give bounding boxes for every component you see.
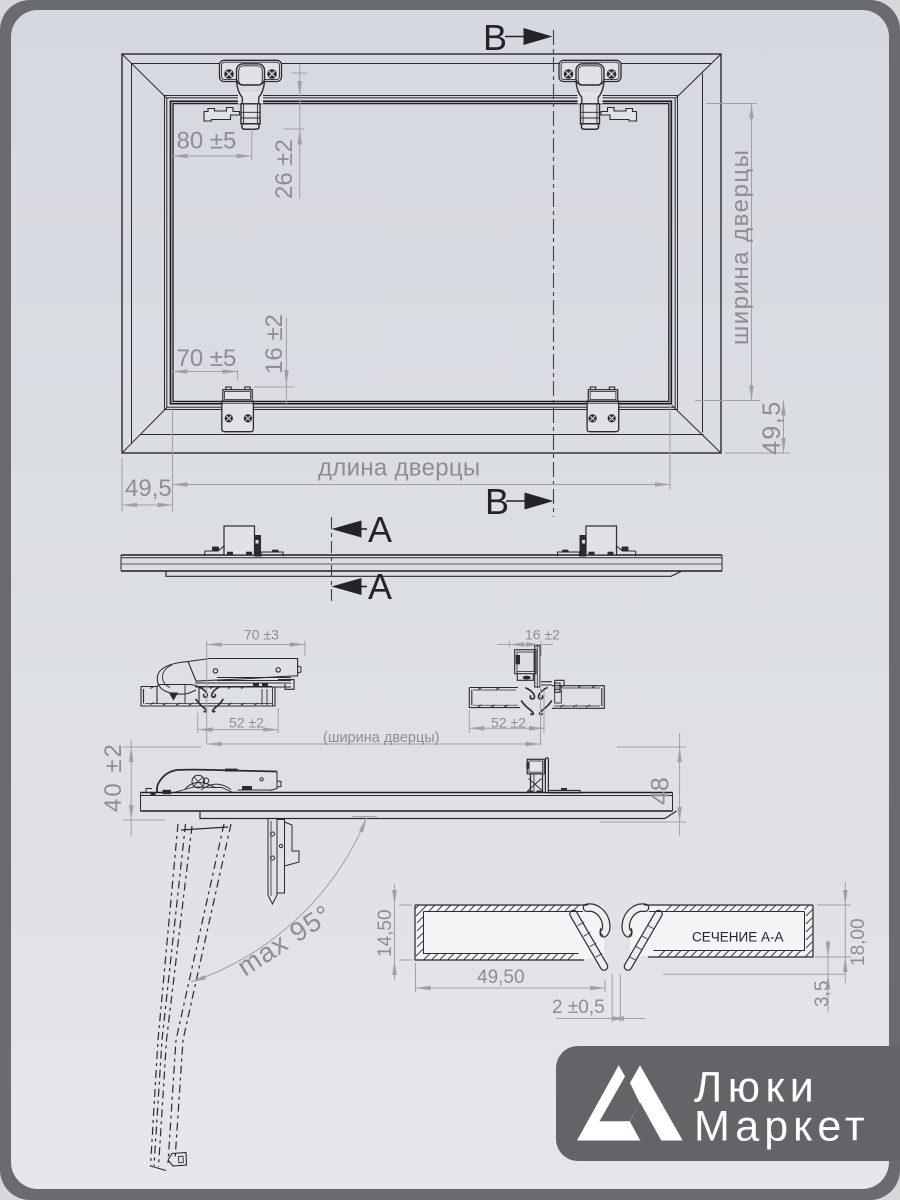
svg-text:A: A [368,509,392,550]
svg-text:52 ±2: 52 ±2 [491,715,526,731]
svg-text:A: A [368,566,392,607]
svg-text:70 ±5: 70 ±5 [177,345,237,372]
svg-text:40 ±2: 40 ±2 [100,742,127,812]
svg-text:Маркет: Маркет [694,1103,870,1151]
svg-text:B: B [483,17,507,58]
svg-text:49,50: 49,50 [477,967,525,988]
svg-text:18,00: 18,00 [848,918,869,966]
svg-text:СЕЧЕНИЕ А-А: СЕЧЕНИЕ А-А [692,930,783,945]
svg-text:16 ±2: 16 ±2 [261,314,288,374]
svg-text:80 ±5: 80 ±5 [177,128,237,155]
svg-text:52 ±2: 52 ±2 [229,715,264,731]
svg-text:длина дверцы: длина дверцы [318,455,480,482]
svg-text:3,5: 3,5 [812,981,833,1007]
svg-text:48: 48 [647,777,675,805]
svg-text:B: B [485,481,509,522]
svg-text:16 ±2: 16 ±2 [525,627,560,643]
svg-text:26 ±2: 26 ±2 [271,139,298,199]
svg-text:ширина дверцы: ширина дверцы [727,149,754,345]
svg-text:49,5: 49,5 [125,475,172,502]
svg-text:14,50: 14,50 [375,909,396,957]
svg-text:70 ±3: 70 ±3 [244,627,279,643]
svg-text:(ширина дверцы): (ширина дверцы) [323,730,440,746]
svg-text:49,5: 49,5 [758,400,786,455]
svg-text:2 ±0,5: 2 ±0,5 [552,997,605,1018]
